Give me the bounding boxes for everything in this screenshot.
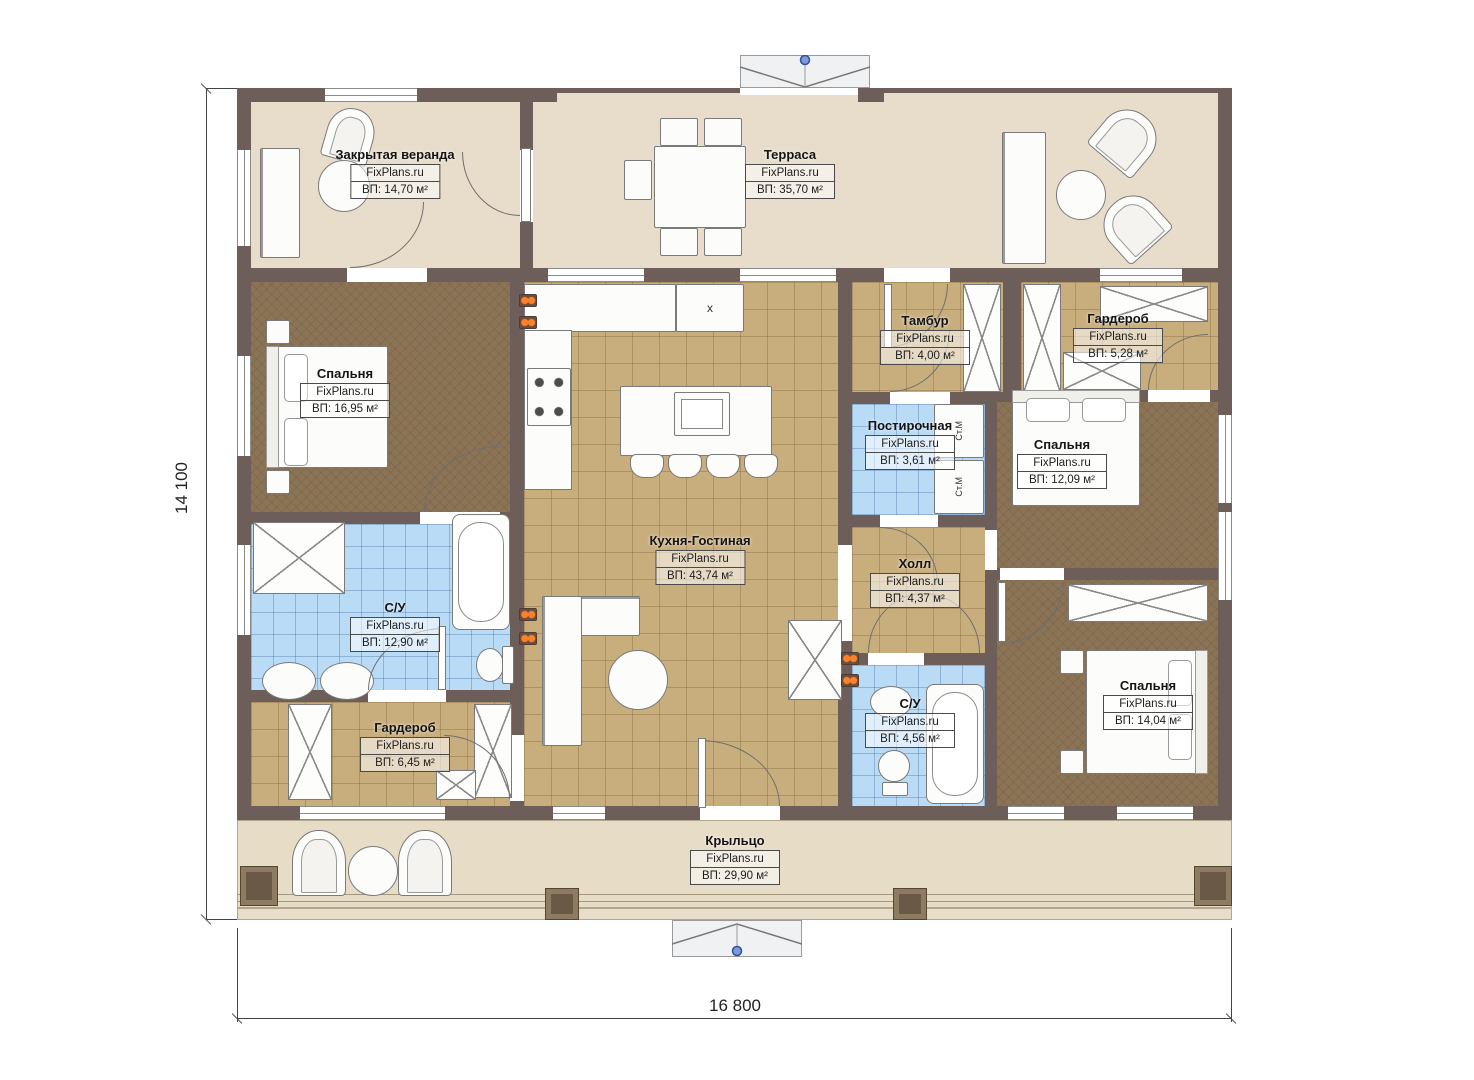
room-info-box: FixPlans.ru ВП: 12,09 м² <box>1017 454 1107 489</box>
room-label-bathroom1: С/У FixPlans.ru ВП: 12,90 м² <box>350 600 440 652</box>
entry-steps-bottom <box>672 920 802 957</box>
watermark: FixPlans.ru <box>1104 696 1192 713</box>
bar-stool <box>744 454 778 478</box>
room-area: ВП: 4,37 м² <box>871 591 959 607</box>
room-label-wardrobe2: Гардероб FixPlans.ru ВП: 5,28 м² <box>1073 311 1163 363</box>
window <box>1100 268 1182 282</box>
bed-headboard <box>1195 650 1208 774</box>
fridge-mark: x <box>707 301 713 315</box>
floor-plan-canvas: x Ст.М Ст.М <box>0 0 1474 1080</box>
window <box>548 268 644 282</box>
room-info-box: FixPlans.ru ВП: 43,74 м² <box>655 550 745 585</box>
room-area: ВП: 14,04 м² <box>1104 713 1192 729</box>
terrace-entry-opening <box>740 88 870 95</box>
nightstand <box>1060 750 1084 774</box>
radiator-marker <box>519 294 537 307</box>
entry-marker-dot <box>801 56 810 65</box>
dimension-extension <box>206 919 237 920</box>
room-name: Спальня <box>1120 678 1176 693</box>
chair <box>624 160 652 200</box>
room-name: Спальня <box>317 366 373 381</box>
window <box>1218 512 1232 600</box>
watermark: FixPlans.ru <box>351 618 439 635</box>
room-area: ВП: 6,45 м² <box>361 755 449 771</box>
room-area: ВП: 4,56 м² <box>866 731 954 747</box>
window <box>740 268 836 282</box>
room-area: ВП: 14,70 м² <box>351 182 439 198</box>
room-area: ВП: 35,70 м² <box>746 182 834 198</box>
room-name: Терраса <box>764 147 816 162</box>
dining-table <box>654 146 746 228</box>
room-name: Постирочная <box>868 418 952 433</box>
dimension-extension <box>237 928 238 1022</box>
room-label-laundry: Постирочная FixPlans.ru ВП: 3,61 м² <box>865 418 955 470</box>
door-opening <box>700 806 780 820</box>
window <box>237 356 251 456</box>
room-label-terrace: Терраса FixPlans.ru ВП: 35,70 м² <box>745 147 835 199</box>
railing-column <box>858 88 884 102</box>
room-area: ВП: 16,95 м² <box>301 401 389 417</box>
watermark: FixPlans.ru <box>746 165 834 182</box>
dimension-line-horizontal <box>237 1018 1232 1019</box>
bathtub <box>452 514 510 630</box>
dimension-extension <box>206 88 237 89</box>
nightstand <box>266 320 290 344</box>
entry-steps-top <box>740 55 870 88</box>
shower <box>253 522 345 594</box>
room-name: С/У <box>899 696 920 711</box>
room-name: Холл <box>899 556 932 571</box>
nightstand <box>1060 650 1084 674</box>
dimension-height-label: 14 100 <box>172 462 192 514</box>
window <box>553 806 605 820</box>
room-info-box: FixPlans.ru ВП: 5,28 м² <box>1073 328 1163 363</box>
room-label-kitchen: Кухня-Гостиная FixPlans.ru ВП: 43,74 м² <box>649 533 750 585</box>
watermark: FixPlans.ru <box>1018 455 1106 472</box>
chair <box>660 228 698 256</box>
porch-step <box>237 908 1232 920</box>
window <box>237 545 251 635</box>
toilet <box>476 648 504 682</box>
room-name: Тамбур <box>901 313 948 328</box>
room-info-box: FixPlans.ru ВП: 29,90 м² <box>690 850 780 885</box>
watermark: FixPlans.ru <box>656 551 744 568</box>
room-info-box: FixPlans.ru ВП: 4,00 м² <box>880 330 970 365</box>
dimension-line-vertical <box>206 88 207 920</box>
door-opening <box>880 515 938 527</box>
door-opening <box>1000 568 1064 580</box>
room-info-box: FixPlans.ru ВП: 4,37 м² <box>870 573 960 608</box>
door-opening <box>510 735 524 801</box>
door-opening <box>890 392 950 404</box>
room-info-box: FixPlans.ru ВП: 35,70 м² <box>745 164 835 199</box>
porch-column <box>1194 866 1232 906</box>
room-area: ВП: 43,74 м² <box>656 568 744 584</box>
watermark: FixPlans.ru <box>691 851 779 868</box>
room-area: ВП: 12,90 м² <box>351 635 439 651</box>
porch-step-line <box>237 894 1232 895</box>
porch-column <box>545 888 579 920</box>
room-label-hall: Холл FixPlans.ru ВП: 4,37 м² <box>870 556 960 608</box>
bar-stool <box>668 454 702 478</box>
radiator-marker <box>519 608 537 621</box>
room-info-box: FixPlans.ru ВП: 14,70 м² <box>350 164 440 199</box>
room-label-bedroom3: Спальня FixPlans.ru ВП: 14,04 м² <box>1103 678 1193 730</box>
porch-column <box>240 866 278 906</box>
chair <box>660 118 698 146</box>
tv-cabinet <box>788 620 842 700</box>
watermark: FixPlans.ru <box>871 574 959 591</box>
sofa <box>1002 132 1046 264</box>
room-name: Гардероб <box>374 720 435 735</box>
door-leaf <box>698 738 706 808</box>
toilet-tank <box>882 782 908 796</box>
room-label-bedroom1: Спальня FixPlans.ru ВП: 16,95 м² <box>300 366 390 418</box>
armchair <box>398 830 452 896</box>
window <box>300 806 445 820</box>
radiator-marker <box>519 316 537 329</box>
entry-marker-dot <box>733 947 742 956</box>
pillow <box>1082 398 1126 422</box>
door-leaf <box>998 582 1006 642</box>
round-table <box>608 650 668 710</box>
dimension-extension <box>1231 928 1232 1022</box>
door-opening <box>347 268 427 282</box>
stove <box>527 368 571 426</box>
room-label-bedroom2: Спальня FixPlans.ru ВП: 12,09 м² <box>1017 437 1107 489</box>
toilet-tank <box>502 646 514 684</box>
room-info-box: FixPlans.ru ВП: 12,90 м² <box>350 617 440 652</box>
door-opening <box>1148 390 1210 402</box>
door-opening <box>884 268 950 282</box>
round-table <box>348 846 398 896</box>
wardrobe-cabinet <box>1068 584 1208 622</box>
door-leaf <box>521 148 531 222</box>
room-label-tambur: Тамбур FixPlans.ru ВП: 4,00 м² <box>880 313 970 365</box>
fridge: x <box>676 284 744 332</box>
room-area: ВП: 3,61 м² <box>866 453 954 469</box>
window <box>1117 806 1193 820</box>
room-area: ВП: 12,09 м² <box>1018 472 1106 488</box>
window <box>325 88 417 102</box>
pillow <box>284 418 308 466</box>
room-area: ВП: 29,90 м² <box>691 868 779 884</box>
room-label-porch: Крыльцо FixPlans.ru ВП: 29,90 м² <box>690 833 780 885</box>
watermark: FixPlans.ru <box>351 165 439 182</box>
wall-opening <box>985 530 997 570</box>
corner-sofa <box>542 596 582 746</box>
sink <box>262 662 316 700</box>
toilet <box>878 750 910 782</box>
room-info-box: FixPlans.ru ВП: 14,04 м² <box>1103 695 1193 730</box>
round-table <box>1056 170 1106 220</box>
armchair <box>292 830 346 896</box>
room-area: ВП: 4,00 м² <box>881 348 969 364</box>
bar-stool <box>706 454 740 478</box>
room-info-box: FixPlans.ru ВП: 4,56 м² <box>865 713 955 748</box>
room-name: С/У <box>384 600 405 615</box>
door-opening <box>368 690 446 702</box>
bed-headboard <box>266 346 279 468</box>
pillow <box>1026 398 1070 422</box>
window <box>1218 415 1232 503</box>
room-area: ВП: 5,28 м² <box>1074 346 1162 362</box>
watermark: FixPlans.ru <box>301 384 389 401</box>
window <box>1008 806 1064 820</box>
railing-column <box>533 88 557 102</box>
radiator-marker <box>841 674 859 687</box>
washer-label: Ст.М <box>954 421 964 441</box>
bar-stool <box>630 454 664 478</box>
chair <box>704 118 742 146</box>
room-name: Крыльцо <box>705 833 764 848</box>
nightstand <box>266 470 290 494</box>
room-name: Спальня <box>1034 437 1090 452</box>
porch-column <box>893 888 927 920</box>
window <box>237 150 251 246</box>
radiator-marker <box>519 632 537 645</box>
island-sink <box>674 392 730 436</box>
room-label-wardrobe1: Гардероб FixPlans.ru ВП: 6,45 м² <box>360 720 450 772</box>
dimension-width-label: 16 800 <box>709 996 761 1016</box>
chair <box>704 228 742 256</box>
watermark: FixPlans.ru <box>361 738 449 755</box>
sink <box>320 662 374 700</box>
room-info-box: FixPlans.ru ВП: 6,45 м² <box>360 737 450 772</box>
entry-steps-top-glyph <box>740 55 870 88</box>
watermark: FixPlans.ru <box>866 714 954 731</box>
porch-step-line <box>237 901 1232 902</box>
door-opening <box>868 653 924 665</box>
room-info-box: FixPlans.ru ВП: 16,95 м² <box>300 383 390 418</box>
sofa <box>260 148 300 258</box>
room-name: Закрытая веранда <box>335 147 454 162</box>
wardrobe-cabinet <box>288 704 332 800</box>
watermark: FixPlans.ru <box>1074 329 1162 346</box>
room-label-veranda: Закрытая веранда FixPlans.ru ВП: 14,70 м… <box>335 147 454 199</box>
washer-label: Ст.М <box>954 477 964 497</box>
room-info-box: FixPlans.ru ВП: 3,61 м² <box>865 435 955 470</box>
kitchen-counter <box>524 284 676 332</box>
closet-cabinet <box>1023 284 1061 392</box>
watermark: FixPlans.ru <box>881 331 969 348</box>
watermark: FixPlans.ru <box>866 436 954 453</box>
entry-steps-bottom-glyph <box>672 920 802 957</box>
radiator-marker <box>841 652 859 665</box>
room-name: Кухня-Гостиная <box>649 533 750 548</box>
room-label-bathroom2: С/У FixPlans.ru ВП: 4,56 м² <box>865 696 955 748</box>
room-name: Гардероб <box>1087 311 1148 326</box>
